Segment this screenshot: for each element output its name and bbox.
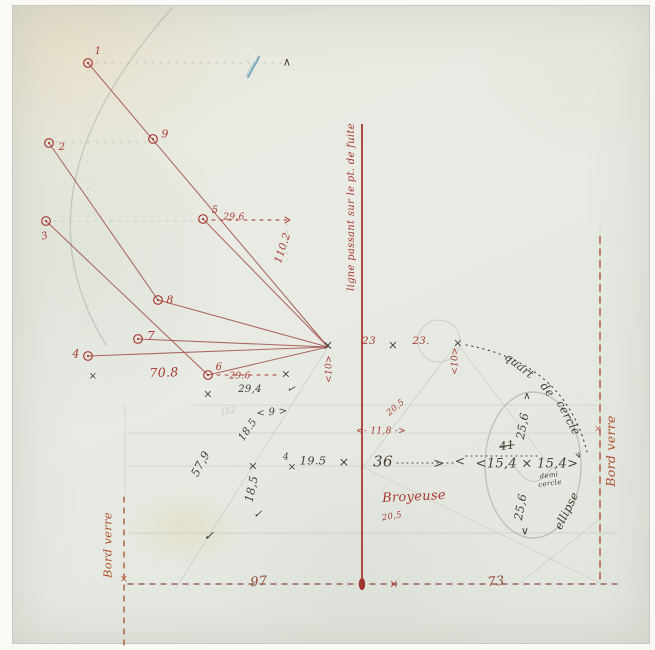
measure-36: 36 [373, 455, 393, 470]
x-mark-baseline: × [389, 579, 399, 590]
measure-15-4-pair: <15,4 × 15,4> [476, 458, 579, 471]
demi-cercle-word-1: demi [539, 471, 558, 481]
measure-9-bracket: < 9 > [256, 407, 288, 420]
caret-top-right: ∧ [283, 57, 291, 68]
quart-de-cercle-word-2: de [538, 381, 556, 400]
measure-25-6-lower: 25,6 [513, 493, 529, 521]
vanishing-point-x: × [322, 340, 333, 353]
bord-verre-left: Bord verre [102, 512, 114, 578]
point-9-label: 9 [161, 129, 168, 140]
measure-25-6-upper: 25,6 [515, 412, 531, 440]
point-2-label: 2 [59, 143, 66, 153]
handwritten-labels: 19253874629.6110.270.829.629,4ligne pass… [0, 0, 655, 650]
arrow-ellipse-bottom: ∨ [521, 526, 529, 537]
arrow-quart-end: ∨ [574, 450, 584, 461]
arrow-36-to-ellipse: > [433, 458, 444, 471]
broyeuse-label: Broyeuse [382, 489, 446, 505]
point-8-label: 8 [166, 295, 173, 306]
measure-29-6-upper: 29.6 [223, 214, 244, 223]
measure-18-5-lower: 18,5 [244, 475, 261, 504]
point-6-label: 6 [216, 363, 223, 373]
arrow-41-left: < [455, 455, 465, 467]
point-5-label: 5 [212, 206, 219, 216]
x-mark-left-edge: × [89, 372, 98, 382]
bord-verre-right: Bord verre [605, 415, 618, 486]
point-3-label: 3 [40, 231, 49, 242]
measure-4-small: 4 [283, 454, 289, 463]
scanned-study-sheet: 19253874629.6110.270.829.629,4ligne pass… [0, 0, 655, 650]
measure-20-5-lower: 20,5 [381, 511, 402, 523]
measure-110-2: 110.2 [273, 231, 293, 264]
measure-10-left: <10> [326, 355, 335, 383]
quart-de-cercle-word-1: quart [502, 351, 535, 381]
arrow-ellipse-top: ∧ [523, 392, 531, 402]
axis-annotation: ligne passant sur le pt. de fuite [347, 123, 357, 291]
measure-29-4: 29,4 [238, 385, 261, 395]
measure-97: 97 [250, 575, 268, 589]
measure-29-6-lower: 29.6 [229, 373, 250, 382]
x-mark-bord-left: × [120, 575, 129, 585]
measure-73: 73 [487, 575, 505, 589]
measure-70-8: 70.8 [149, 366, 178, 380]
demi-cercle-word-2: cercle [538, 479, 562, 489]
check-mark-lower-left: ✓ [204, 530, 215, 543]
x-mark-row-right: × [339, 456, 350, 469]
x-mark-quart-start: × [453, 338, 463, 349]
point-1-label: 1 [95, 47, 102, 57]
ellipse-label: ellipse [553, 490, 581, 531]
x-mark-below-6: × [203, 389, 213, 400]
measure-20-5-upper: 20,5 [386, 398, 407, 417]
measure-23-right: 23. [412, 336, 430, 347]
measure-57-9: 57,9 [190, 449, 213, 478]
measure-19-5: 19.5 [300, 455, 327, 467]
measure-11-8: <- 11,8 -> [356, 428, 406, 437]
measure-23-left: 23 [362, 336, 376, 347]
pencil-note-52: (52 [221, 407, 237, 418]
measure-10-right: <10> [452, 347, 461, 375]
x-mark-23-row: × [388, 339, 398, 351]
x-mark-under-4: × [287, 462, 296, 473]
measure-41-struck: 41 [499, 439, 516, 453]
x-mark-row-left: × [248, 460, 258, 472]
measure-18-5-upper: 18.5 [237, 417, 260, 443]
check-mark-center: ✓ [253, 509, 263, 520]
point-7-label: 7 [147, 330, 155, 342]
quart-de-cercle-word-3: cercle [554, 399, 582, 437]
x-mark-29-4-end: × [281, 369, 291, 380]
x-mark-bord-right: × [594, 426, 602, 435]
check-mark-29-4: ✓ [286, 384, 297, 396]
point-4-label: 4 [72, 349, 79, 360]
